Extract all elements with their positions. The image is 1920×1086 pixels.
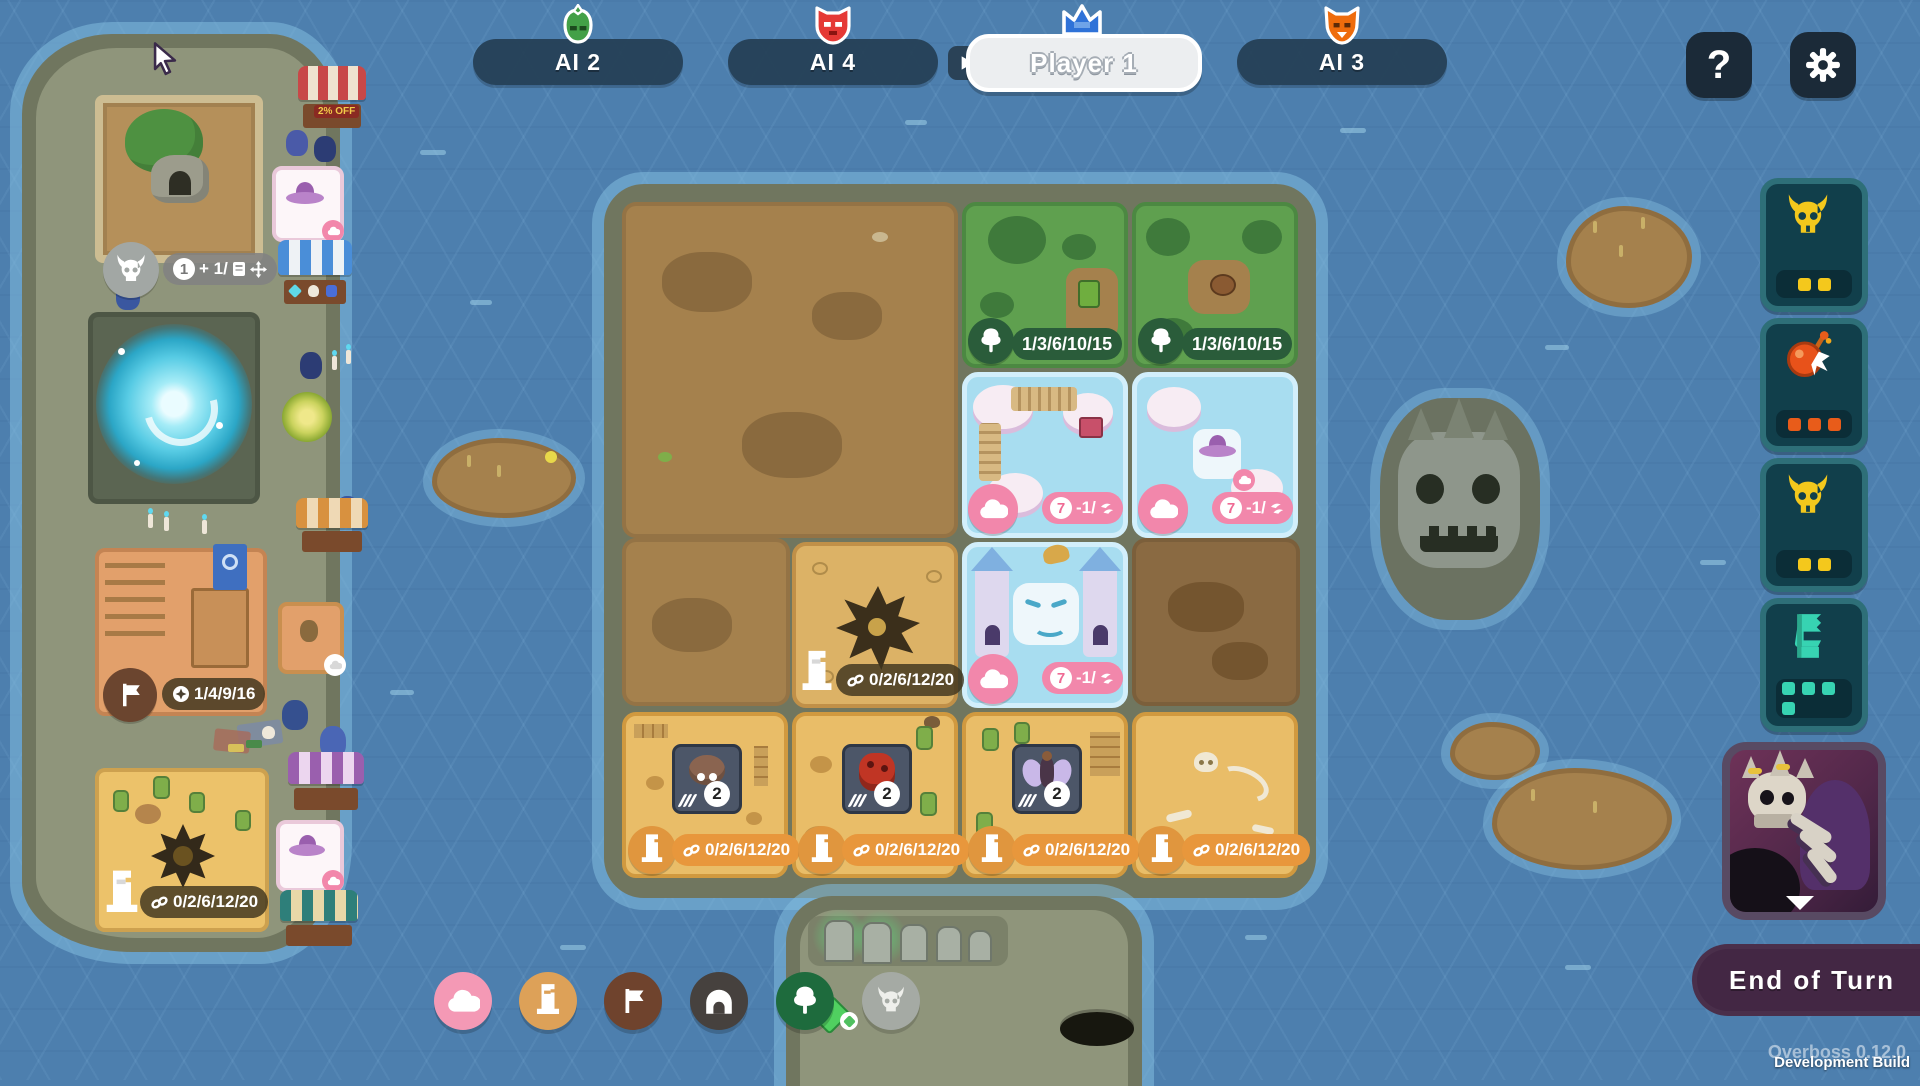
desert-stat-pill-3: 0/2/6/12/20 [1012, 834, 1140, 866]
forest-stat-text: 1/3/6/10/15 [1022, 334, 1112, 355]
rock [810, 756, 832, 773]
shrine-stat-pill: 1 + 1/ [163, 253, 277, 285]
wind-icon [1100, 672, 1115, 685]
stall-table [302, 531, 363, 552]
cloud-puff [1147, 387, 1201, 427]
chain-icon [1192, 843, 1211, 858]
tower-roof [971, 547, 1013, 571]
flag-badge [103, 668, 157, 722]
statue-icon [535, 982, 561, 1020]
wizard-npc [282, 700, 308, 730]
crater-stat-text: 0/2/6/12/20 [869, 670, 954, 690]
cactus [1014, 722, 1030, 744]
cloud-icon [446, 988, 480, 1014]
boss-horn [1796, 758, 1814, 778]
village-stat-text: 1/4/9/16 [194, 684, 255, 704]
village-keep [191, 588, 249, 668]
chest [1079, 417, 1103, 438]
ability-button-skull-1[interactable] [1760, 178, 1868, 312]
boss-gold-ring [1748, 768, 1762, 774]
merchant-figure [300, 620, 318, 642]
frame-footer: 2 [851, 781, 900, 807]
wind-icon [1270, 502, 1285, 515]
tree-icon [977, 327, 1005, 355]
grass-tuft [1531, 789, 1535, 801]
bone-decoration [872, 232, 888, 242]
ability-cost-bar [1776, 679, 1852, 718]
horned-skull-icon [114, 253, 148, 287]
wave-decoration [470, 300, 492, 305]
skull-rock-mouth [1420, 526, 1498, 552]
skull-badge [103, 242, 159, 298]
player-label: Player 1 [1030, 48, 1138, 79]
beetle-creature-frame[interactable]: 2 [842, 744, 912, 814]
shrine-cave-entrance [169, 171, 191, 195]
statue-badge [968, 826, 1016, 874]
cost-pip [1798, 558, 1811, 571]
forest-stat-pill-2: 1/3/6/10/15 [1182, 328, 1292, 360]
statue-icon [800, 648, 834, 698]
grass-tuft [1641, 217, 1645, 229]
rock [746, 812, 762, 825]
boss-horn [1770, 750, 1790, 776]
merchant-tile[interactable] [278, 602, 344, 674]
dark-dirt-tile[interactable] [1132, 538, 1300, 706]
sale-sign: 2% OFF [314, 105, 359, 118]
desert-stat-pill-2: 0/2/6/12/20 [842, 834, 970, 866]
banner-skull-emblem [222, 554, 238, 570]
cost-pip [1798, 278, 1811, 291]
cloud-icon [327, 226, 340, 236]
cactus [916, 726, 933, 750]
ability-button-banner-creature[interactable] [1760, 598, 1868, 732]
statue-icon [980, 832, 1004, 868]
blue-crown-icon [1058, 0, 1106, 49]
skull-rock-spike [1408, 408, 1434, 440]
village-stat-pill: 1/4/9/16 [162, 678, 265, 710]
cost-pip [1802, 682, 1815, 695]
token-icon [172, 685, 190, 703]
gem-icon [843, 1015, 856, 1028]
tower-door [985, 625, 1000, 645]
creature-count: 2 [704, 781, 730, 807]
skull-item [308, 285, 319, 297]
cloud-cost: 7 [1220, 497, 1242, 519]
candle [332, 356, 337, 370]
skull-rock-teeth [1420, 526, 1498, 536]
statue-icon [104, 868, 140, 920]
blue-awning [278, 240, 352, 275]
horned-skull-icon [1784, 472, 1832, 525]
desert-stat-text: 0/2/6/12/20 [1045, 840, 1130, 860]
wave-decoration [1700, 560, 1726, 565]
flag-icon [618, 986, 648, 1016]
desert-stat-text: 0/2/6/12/20 [875, 840, 960, 860]
cloud-stat-pill-1: 7 -1/ [1042, 492, 1123, 524]
candle [202, 520, 207, 534]
boss-gold-ring [1776, 764, 1790, 770]
cloud-badge [968, 654, 1018, 704]
ability-button-skull-2[interactable] [1760, 458, 1868, 592]
cloud-badge [1138, 484, 1188, 534]
harpy-card[interactable] [276, 820, 344, 892]
bone [1165, 809, 1192, 823]
dirt-patch [742, 412, 842, 478]
cactus [982, 728, 999, 751]
boss-eye [1782, 792, 1794, 805]
cactus [235, 810, 251, 831]
desert-stat-text: 0/2/6/12/20 [1215, 840, 1300, 860]
wave-decoration [1565, 965, 1591, 970]
skull-rock-eye [1472, 474, 1500, 504]
rock [646, 776, 664, 790]
spider-creature-frame[interactable]: 2 [672, 744, 742, 814]
cloud-face-eye [1051, 599, 1068, 609]
flower-decoration [545, 451, 557, 463]
filter-skull[interactable] [862, 972, 920, 1030]
bush [1062, 234, 1096, 260]
purple-awning [288, 752, 364, 784]
flag-icon [116, 681, 144, 709]
statue-badge [628, 826, 676, 874]
cloud-cost: 7 [1050, 497, 1072, 519]
potion-item [326, 285, 337, 297]
spider-eye [709, 773, 717, 781]
claws-icon [1021, 794, 1034, 807]
red-awning [298, 66, 366, 100]
gravestone [968, 930, 992, 962]
statue-badge [800, 648, 834, 703]
ability-cost-bar [1776, 550, 1852, 578]
cloud-face [1013, 583, 1079, 645]
cloud-icon [978, 498, 1008, 520]
boss-jaw [1754, 814, 1794, 828]
cloud-face-frown [1033, 617, 1067, 637]
wave-decoration [1545, 345, 1569, 350]
shop-stall-teal [280, 890, 358, 946]
desert-stat-text: 0/2/6/12/20 [705, 840, 790, 860]
end-of-turn-button[interactable]: End of Turn [1692, 944, 1920, 1016]
cost-pip [1788, 418, 1801, 431]
cloud-icon [978, 668, 1008, 690]
wave-decoration [560, 945, 586, 950]
banner-creature-icon [1786, 612, 1830, 665]
grass-tuft [1593, 221, 1597, 233]
cloud-ladder [979, 423, 1001, 481]
bush [980, 292, 1014, 318]
beetle-spot [867, 761, 874, 768]
dark-hole [1060, 1012, 1134, 1046]
cloud-cost-badge [324, 654, 346, 676]
dirt-patch [1168, 582, 1244, 632]
cloud-icon [327, 876, 340, 886]
filter-flag[interactable] [604, 972, 662, 1030]
sale-sign-text: 2% OFF [318, 106, 355, 117]
settings-button[interactable] [1790, 32, 1856, 98]
sparkle [216, 422, 223, 429]
rock [135, 804, 161, 824]
portal-tile[interactable] [88, 312, 260, 504]
statue-icon [810, 832, 834, 868]
stall-table [294, 788, 358, 810]
cost-pip [1822, 682, 1835, 695]
skull-rock-spike [1444, 398, 1474, 438]
shop-stall-orange [296, 498, 368, 552]
orange-demon-icon [1320, 4, 1364, 53]
desert-stat-pill-1: 0/2/6/12/20 [672, 834, 800, 866]
cave-icon [703, 986, 735, 1016]
cloud-stat-text: -1/ [1076, 498, 1096, 518]
forest-badge [1138, 318, 1184, 364]
dark-wheel-hub [173, 846, 193, 866]
dirt-patch [1212, 642, 1268, 680]
creature-count: 2 [874, 781, 900, 807]
chain-icon [852, 843, 871, 858]
cost-pip [1818, 278, 1831, 291]
chain-icon [1022, 843, 1041, 858]
filter-tree[interactable] [776, 972, 834, 1030]
red-demon-icon [811, 4, 855, 53]
claws-icon [681, 794, 694, 807]
wizard-npc [314, 136, 336, 162]
bones-skull [1194, 752, 1218, 772]
tower-door [1093, 625, 1108, 645]
filter-statue[interactable] [519, 972, 577, 1030]
ability-cost-bar [1776, 270, 1852, 298]
tree-canopy [988, 216, 1046, 264]
cloud-icon [329, 660, 342, 670]
sprout-demon-icon [556, 4, 600, 53]
cloud-stat-pill-2: 7 -1/ [1212, 492, 1293, 524]
wave-decoration [390, 690, 414, 695]
boss-portrait[interactable] [1722, 742, 1886, 920]
shrine-tile[interactable] [95, 95, 263, 263]
small-island [1566, 206, 1692, 308]
cactus [113, 790, 129, 812]
grass-tuft [1619, 245, 1623, 257]
forest-creature [1078, 280, 1100, 308]
fairy-creature-frame[interactable]: 2 [1012, 744, 1082, 814]
wizard-npc [286, 130, 308, 156]
build-label: Development Build [1774, 1054, 1910, 1071]
frame-footer: 2 [1021, 781, 1070, 807]
gravestone [824, 920, 854, 962]
grass-tuft [467, 455, 471, 467]
sparkle [134, 460, 140, 466]
statue-icon [1150, 832, 1174, 868]
village-fence [105, 558, 165, 648]
skull-rock-spike [1482, 410, 1508, 440]
chain-icon [150, 895, 169, 910]
cloud-badge [968, 484, 1018, 534]
skull-item [262, 726, 275, 739]
expand-arrow-icon[interactable] [1786, 896, 1814, 910]
chain-icon [846, 673, 865, 688]
tree-canopy [1146, 218, 1190, 256]
cactus [920, 792, 937, 816]
statue-badge [104, 868, 140, 925]
horned-skull-icon [1784, 192, 1832, 245]
stall-table [286, 925, 352, 946]
cloud-icon [1148, 498, 1178, 520]
shop-stall-blue [278, 240, 352, 304]
skull-rock-island [1380, 398, 1540, 620]
cloud-icon [1238, 475, 1251, 485]
candle [346, 350, 351, 364]
shop-stall-red [298, 66, 366, 128]
cloud-stat-text: -1/ [1076, 668, 1096, 688]
harpy-wings [1199, 445, 1236, 457]
shrine-stat-text: + 1/ [199, 259, 228, 279]
gravestone [862, 922, 892, 964]
help-label: ? [1707, 43, 1731, 88]
mouse-cursor [150, 42, 180, 81]
cloud-cost-badge [322, 220, 344, 242]
tree-icon [1147, 327, 1175, 355]
wave-decoration [1340, 128, 1366, 133]
ability-button-bomb[interactable] [1760, 318, 1868, 452]
move-arrows-icon [250, 261, 267, 278]
gravestone [900, 924, 928, 962]
ability-cost-bar [1776, 410, 1852, 438]
skull-rock-eye [1416, 474, 1444, 504]
cost-pip [1818, 558, 1831, 571]
desert-stat-pill-4: 0/2/6/12/20 [1182, 834, 1310, 866]
cost-pip [1782, 702, 1795, 715]
grass-sprig [658, 452, 672, 462]
dirt-tiles[interactable] [622, 202, 958, 538]
book-item [246, 740, 262, 748]
candle [164, 517, 169, 531]
filter-cloud[interactable] [434, 972, 492, 1030]
cloud-cost-badge [1233, 469, 1255, 491]
help-button[interactable]: ? [1686, 32, 1752, 98]
bones-skull-eye [1199, 760, 1204, 765]
home-desert-stat-text: 0/2/6/12/20 [173, 892, 258, 912]
wave-decoration [905, 120, 927, 125]
brick-wall [1090, 732, 1120, 776]
bones-skull-eye [1208, 760, 1213, 765]
harpy-wings [289, 844, 325, 856]
wizard-npc [300, 352, 322, 379]
cost-pip [1782, 682, 1795, 695]
shrine-count: 1 [173, 258, 195, 280]
frame-footer: 2 [681, 781, 730, 807]
cloud-cost-badge [322, 870, 344, 892]
spider-eye [697, 773, 705, 781]
tree-canopy [1242, 220, 1282, 254]
dirt-patch [652, 598, 732, 652]
orange-awning [296, 498, 368, 528]
forest-badge [968, 318, 1014, 364]
gravestone [936, 926, 962, 962]
fairy-head [1042, 751, 1052, 761]
yellow-swirl [282, 392, 332, 442]
harpy-wings [286, 192, 324, 204]
gear-icon [1803, 45, 1843, 85]
statue-badge [1138, 826, 1186, 874]
creature-count: 2 [1044, 781, 1070, 807]
cactus [153, 776, 170, 799]
cost-pip [1808, 418, 1821, 431]
teal-awning [280, 890, 358, 921]
crater-pebble [926, 570, 942, 583]
claws-icon [851, 794, 864, 807]
home-desert-stat-pill: 0/2/6/12/20 [140, 886, 268, 918]
cloud-stat-pill-3: 7 -1/ [1042, 662, 1123, 694]
tower-roof [1079, 547, 1121, 571]
cost-pip [1828, 418, 1841, 431]
chain-icon [682, 843, 701, 858]
bones-ribs [1212, 759, 1274, 809]
dirt-patch [812, 292, 882, 340]
book-item [228, 744, 244, 752]
dirt-tile[interactable] [622, 538, 790, 706]
forest-stat-pill-1: 1/3/6/10/15 [1012, 328, 1122, 360]
gem-creature-badge [840, 1012, 858, 1030]
card-icon [232, 261, 246, 277]
crater-stat-pill: 0/2/6/12/20 [836, 664, 964, 696]
wave-decoration [420, 150, 446, 155]
cloud-cost: 7 [1050, 667, 1072, 689]
end-of-turn-label: End of Turn [1729, 965, 1895, 996]
boss-eye [1760, 790, 1774, 805]
beetle-spot [881, 765, 888, 772]
small-island [432, 438, 576, 518]
small-island [1450, 722, 1540, 780]
statue-icon [640, 832, 664, 868]
village-banner [213, 544, 247, 590]
wave-decoration [1245, 935, 1267, 940]
crater-center [868, 618, 886, 636]
cloud-bridge [1011, 387, 1077, 411]
brick-wall [634, 724, 668, 738]
skull-icon [875, 985, 907, 1017]
wind-icon [1100, 502, 1115, 515]
snail-creature [1210, 274, 1236, 296]
dirt-patch [662, 252, 752, 312]
sparkle [118, 348, 125, 355]
griffin-creature [1041, 542, 1070, 565]
cloud-stat-text: -1/ [1246, 498, 1266, 518]
statue-badge [798, 826, 846, 874]
grass-tuft [497, 465, 501, 477]
forest-stat-text: 1/3/6/10/15 [1192, 334, 1282, 355]
tree-icon [789, 985, 821, 1017]
crater-pebble [812, 562, 828, 575]
cloud-face-eye [1025, 599, 1042, 609]
candle [148, 514, 153, 528]
filter-cave[interactable] [690, 972, 748, 1030]
boss-horn [1742, 756, 1760, 778]
bomb-icon [1782, 330, 1834, 387]
shop-stall-purple [288, 752, 364, 810]
cactus [189, 792, 205, 813]
small-island [1492, 768, 1672, 870]
brick-wall [754, 746, 768, 786]
grass-tuft [1593, 801, 1597, 813]
harpy-card[interactable] [272, 166, 344, 242]
